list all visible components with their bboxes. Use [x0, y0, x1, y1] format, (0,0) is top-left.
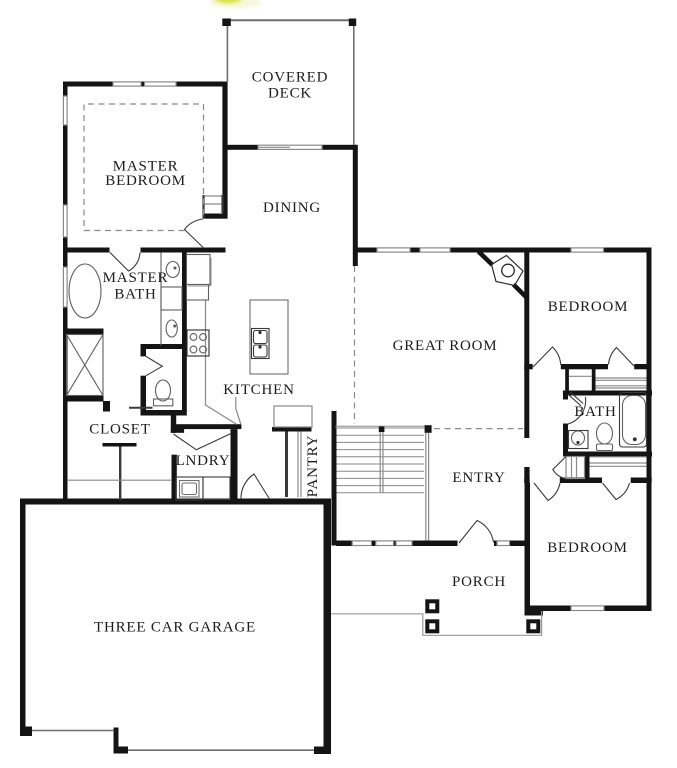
svg-text:PORCH: PORCH [452, 574, 506, 590]
svg-text:THREE CAR GARAGE: THREE CAR GARAGE [94, 620, 256, 636]
svg-text:MASTER: MASTER [113, 159, 179, 175]
svg-text:DINING: DINING [263, 200, 321, 216]
svg-text:CLOSET: CLOSET [89, 422, 150, 438]
svg-text:COVERED: COVERED [252, 70, 328, 86]
svg-text:LNDRY: LNDRY [176, 453, 231, 469]
svg-text:GREAT ROOM: GREAT ROOM [393, 338, 498, 354]
svg-text:BATH: BATH [114, 287, 156, 303]
svg-text:BEDROOM: BEDROOM [105, 173, 186, 189]
svg-text:DECK: DECK [268, 86, 312, 102]
svg-text:BATH: BATH [574, 404, 616, 420]
svg-text:KITCHEN: KITCHEN [223, 382, 294, 398]
svg-text:BEDROOM: BEDROOM [548, 299, 629, 315]
svg-text:BEDROOM: BEDROOM [547, 540, 628, 556]
svg-text:PANTRY: PANTRY [305, 435, 321, 498]
svg-text:MASTER: MASTER [103, 270, 169, 286]
svg-text:ENTRY: ENTRY [452, 470, 505, 486]
